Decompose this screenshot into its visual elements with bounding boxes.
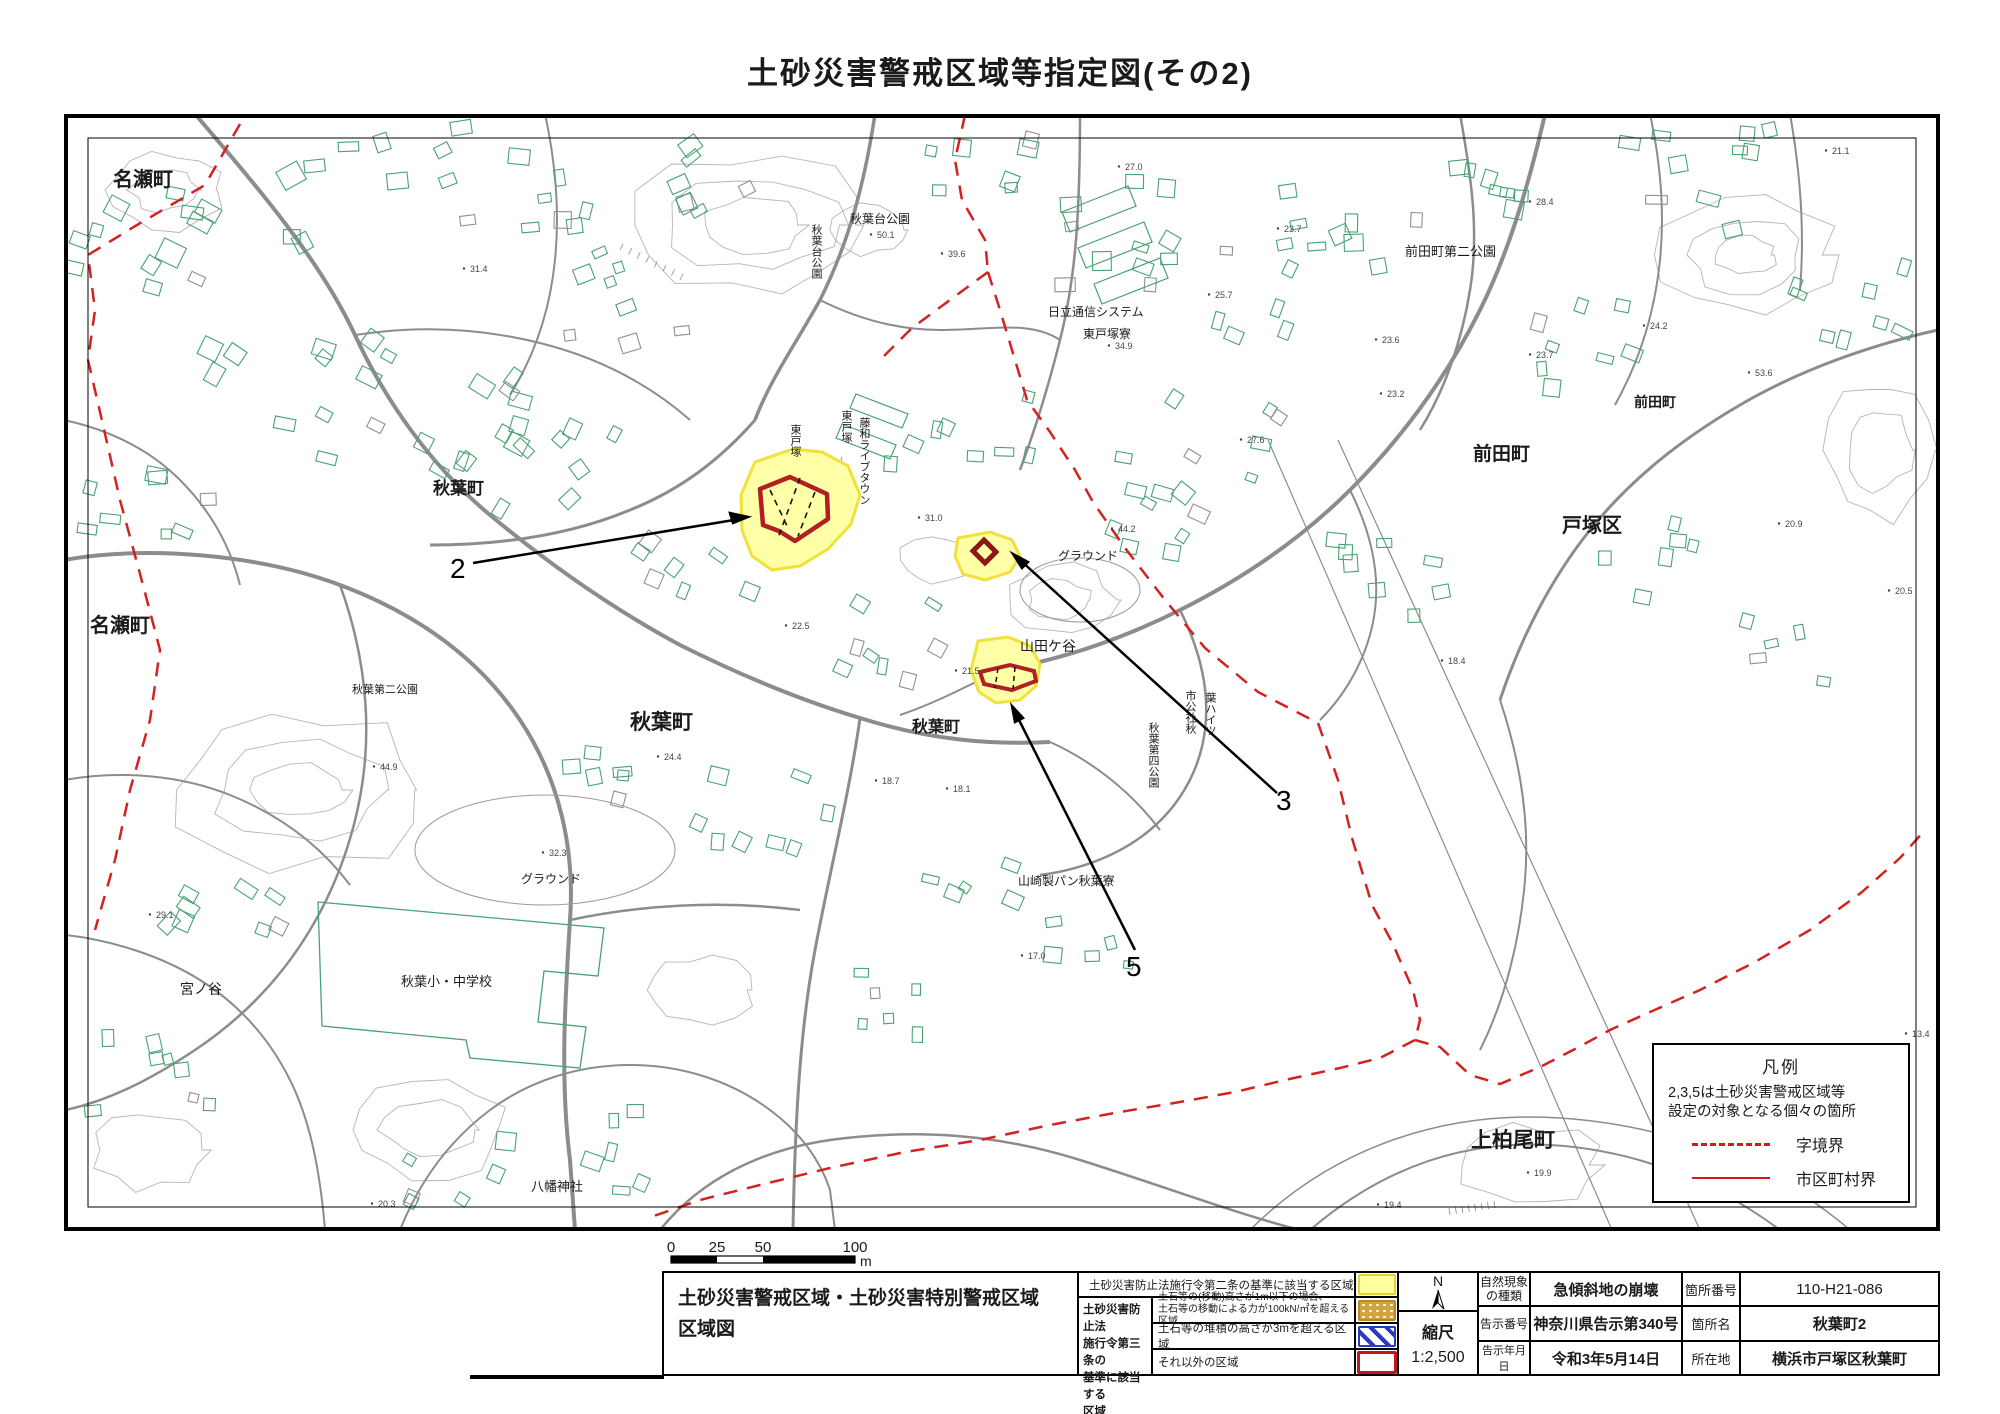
building [1001,857,1021,873]
building [403,1153,417,1166]
north-label: N [1427,1273,1449,1289]
spot-dot [946,787,948,789]
place-label-yamazaki-dorm: 山崎製パン秋葉寮 [1018,873,1115,888]
spot-dot [1529,353,1531,355]
building [1488,184,1507,197]
spot-dot [1277,227,1279,229]
building [1480,169,1498,189]
info-label-site-number: 箇所番号 [1682,1271,1740,1306]
building [89,223,104,238]
spot-dot [1111,527,1113,529]
building [386,172,408,190]
building [178,885,198,904]
spot-dot [870,233,872,235]
spot-dot [542,851,544,853]
building [592,246,608,259]
road [1790,114,1802,290]
contour-line [105,152,222,233]
road [64,420,240,585]
building [538,193,552,203]
road [1420,114,1474,430]
legend-group-line1: 土砂災害防止法 [1083,1302,1151,1336]
building [925,597,942,611]
building [707,766,729,786]
building [1873,316,1889,331]
building [912,984,921,996]
building [438,172,457,188]
building [69,231,90,249]
spot-elevation: 19.4 [1384,1200,1402,1210]
spot-elevation: 24.2 [1650,321,1668,331]
building [155,238,186,268]
spot-elevation: 21.5 [962,666,980,676]
info-label-site-name: 箇所名 [1682,1306,1740,1341]
legend-item-azakyokai: 字境界 [1796,1132,1844,1156]
place-label-maedacho-2: 前田町 [1473,442,1530,465]
place-label-higashitotsuka-2: 東戸塚 [840,410,853,443]
building [141,255,162,276]
spot-elevation: 25.7 [1215,290,1233,300]
place-label-nasecho-2: 名瀬町 [90,613,150,637]
building [487,1164,506,1184]
place-label-hitachi-line2: 東戸塚寮 [1083,326,1131,341]
building [1043,946,1062,963]
spot-elevation: 20.9 [1785,519,1803,529]
spot-dot [371,1202,373,1204]
contour-line [353,1080,505,1181]
building [188,1093,199,1103]
spot-dot [1888,589,1890,591]
building [1045,916,1062,928]
building [674,326,690,336]
place-label-yamadagaya: 山田ケ谷 [1020,638,1076,654]
building [1614,299,1630,313]
building [944,884,965,903]
spot-dot [785,624,787,626]
place-label-akiba-school: 秋葉小・中学校 [401,974,492,989]
building [100,513,121,524]
building [1696,190,1721,207]
building [1115,451,1133,464]
building [176,896,200,918]
spot-dot [1825,149,1827,151]
building [1308,242,1326,251]
building [1092,251,1111,270]
sheet-title-line2: 区域図 [678,1314,1039,1345]
spot-elevation: 31.0 [925,513,943,523]
spot-elevation: 21.1 [1832,146,1850,156]
building [1836,330,1851,350]
building [883,1013,893,1024]
place-label-maedacho-park: 前田町第二公園 [1405,244,1496,259]
contour-line [1010,562,1121,633]
building [611,791,627,808]
building [1537,361,1547,376]
building [1159,230,1181,252]
spot-dot [941,252,943,254]
contour-line [94,1115,212,1193]
spot-elevation: 31.4 [470,264,488,274]
spot-elevation: 20.5 [1895,586,1913,596]
aza-boundary-dashed [884,272,988,356]
building [709,547,728,564]
place-label-akibacho-2: 秋葉町 [630,711,693,734]
spot-dot [1208,293,1210,295]
scale-tick-25: 25 [709,1239,726,1256]
spot-elevation: 32.3 [549,848,567,858]
building [676,192,698,215]
building [863,648,879,663]
building [203,362,226,387]
building [573,264,595,285]
building [739,581,760,601]
building [161,529,171,539]
building [1220,246,1233,255]
building [562,418,582,440]
spot-dot [1380,392,1382,394]
legend-note-line1: 2,3,5は土砂災害警戒区域等 [1668,1084,1908,1103]
info-value-location: 横浜市戸塚区秋葉町 [1740,1341,1940,1376]
north-arrow-icon [1427,1289,1449,1311]
slope-hatch [671,269,674,275]
spot-elevation: 44.9 [380,762,398,772]
aza-boundary-dashed [988,272,1420,1040]
building [609,1113,619,1128]
spot-elevation: 28.4 [1536,197,1554,207]
legend-group-line4: 区域 [1083,1404,1151,1414]
road [1338,440,1700,1230]
building [508,148,531,166]
building [644,569,664,589]
spot-elevation: 18.1 [953,784,971,794]
road [66,585,366,1110]
spot-elevation: 22.5 [792,621,810,631]
building [60,259,84,276]
contour-line [1029,579,1091,620]
legend-row3-text: 土石等の堆積の高さが3mを超える区域 [1152,1323,1355,1349]
building [903,435,924,454]
building [1424,555,1443,567]
building [559,488,581,510]
place-label-akibadai-park: 秋葉台公園 [850,211,910,226]
zone-5-number: 5 [1126,951,1142,982]
building [1171,481,1195,505]
building [102,1029,114,1046]
spot-dot [1905,1032,1907,1034]
place-label-towa-livetown: 藤和ライブタウン [858,417,871,505]
building [434,142,452,159]
zone-3-area [955,532,1020,580]
place-label-city-housing-col2: 葉ハイツ [1204,691,1217,736]
swatch-blue-hatched [1358,1326,1396,1347]
building [766,835,786,851]
building [566,218,583,235]
spot-elevation: 39.6 [948,249,966,259]
spot-elevation: 19.9 [1534,1168,1552,1178]
building [613,261,625,274]
building [604,276,617,289]
building [562,759,581,774]
spot-elevation: 24.4 [664,752,682,762]
legend-title: 凡例 [1654,1053,1908,1078]
building [1188,504,1211,524]
building [899,671,916,689]
building [1732,146,1747,155]
place-label-nasecho-1: 名瀬町 [113,167,173,191]
slope-hatch [1487,1202,1488,1209]
building [612,1186,630,1195]
spot-elevation: 18.4 [1448,656,1466,666]
legend-row4-text: それ以外の区域 [1152,1349,1355,1376]
slope-hatch [629,248,632,254]
building [1633,589,1652,605]
road [64,775,350,885]
spot-dot [463,267,465,269]
spot-dot [657,755,659,757]
building [1658,548,1673,567]
place-label-akibacho-3: 秋葉町 [912,717,960,736]
contour-line [377,1100,479,1157]
building [1344,234,1364,252]
spot-elevation: 27.0 [1125,162,1143,172]
contour-line [647,955,752,1025]
slope-hatch [680,274,683,280]
place-label-totsukaku: 戸塚区 [1562,514,1622,537]
building [1687,539,1699,553]
spot-dot [955,669,957,671]
building [786,840,802,857]
building [338,142,359,152]
building [1369,258,1387,275]
building [921,874,939,886]
slope-hatch [637,252,640,258]
building [618,333,641,354]
large-building [1078,222,1152,268]
building [1596,353,1614,365]
road [510,114,557,395]
building [1184,449,1201,464]
building [188,271,206,286]
building [579,202,593,220]
building [149,1052,164,1066]
building [276,161,307,190]
info-value-notice-number: 神奈川県告示第340号 [1530,1306,1682,1341]
building [617,770,629,781]
building [584,746,601,760]
building [1161,253,1178,265]
building [513,438,534,459]
building [1817,676,1831,687]
slope-hatch [1468,1205,1469,1212]
building [995,447,1014,456]
building [1151,484,1174,502]
info-label-notice-number: 告示番号 [1478,1306,1530,1341]
place-label-city-housing-col1: 市公社秋 [1184,689,1197,735]
place-label-ground-2: グラウンド [521,872,581,886]
building [1326,532,1346,548]
road [66,935,325,1230]
building [1002,890,1025,911]
scale-tick-50: 50 [755,1239,772,1256]
legend-item-shikuchoson: 市区町村界 [1796,1166,1876,1190]
building [143,279,163,296]
building [1574,297,1589,314]
building [468,374,495,399]
place-label-akibacho-1: 秋葉町 [433,478,484,498]
building [932,185,946,196]
building [1621,344,1643,363]
swatch-orange-dotted [1358,1300,1396,1321]
building [791,769,811,784]
building [967,451,984,462]
building [580,1151,604,1172]
info-value-notice-date: 令和3年5月14日 [1530,1341,1682,1376]
contour-line [215,739,389,841]
spot-elevation: 29.1 [156,910,174,920]
building [197,336,223,362]
building [1820,329,1835,343]
spot-dot [149,913,151,915]
building [1646,195,1668,204]
building [84,1105,101,1118]
road [1615,114,1662,405]
building [460,215,476,226]
place-label-akiba-park2: 秋葉第二公園 [352,682,418,696]
contour-line [705,198,809,255]
spot-dot [373,765,375,767]
building [850,594,871,614]
building [200,493,216,506]
building [454,1192,470,1207]
building [937,418,955,437]
place-label-akiba-park4-v: 秋葉第四公園 [1147,721,1160,789]
zone-2-number: 2 [450,553,466,584]
building [521,222,539,233]
boundary-dashed-sample [1692,1143,1770,1146]
building [564,329,576,341]
building [146,1034,163,1053]
spot-dot [1377,1203,1379,1205]
building [1023,447,1036,464]
legend-group-line2: 施行令第三条の [1083,1336,1151,1370]
building [1764,638,1779,649]
building [1343,554,1358,572]
info-label-phenomenon-1: 自然現象 [1480,1275,1528,1289]
building [616,299,637,317]
building [380,349,396,364]
scale-bar: 0 25 50 100 m [667,1239,872,1269]
building [927,638,947,658]
building [689,814,707,833]
building [1271,409,1288,426]
sheet-title-line1: 土砂災害警戒区域・土砂災害特別警戒区域 [678,1283,1039,1314]
building [223,343,247,366]
slope-hatch [620,244,623,250]
building [1788,277,1803,297]
building [1739,126,1755,142]
place-label-ground-1: グラウンド [1058,549,1118,563]
building [1599,551,1611,565]
building [77,523,97,535]
aza-boundary-dashed [648,1040,1415,1218]
boundary-solid-sample [1692,1177,1770,1179]
road [1480,700,1526,1050]
contour-line [1715,235,1776,273]
building [304,159,326,173]
building [870,988,880,999]
building [1668,516,1682,532]
building [912,1027,922,1043]
building [1085,951,1100,962]
spot-dot [1441,659,1443,661]
spot-elevation: 53.6 [1755,368,1773,378]
place-label-higashitotsuka-1: 東戸塚 [789,424,802,457]
spot-elevation: 23.7 [1536,350,1554,360]
spot-elevation: 23.6 [1382,335,1400,345]
building [1543,378,1561,397]
building [1165,389,1184,409]
info-value-site-number: 110-H21-086 [1740,1271,1940,1306]
building [1157,179,1175,198]
building [1668,155,1688,174]
scale-label: 縮尺 [1411,1319,1464,1343]
road [793,718,860,1230]
spot-elevation: 23.2 [1387,389,1405,399]
contour-line [1823,390,1937,525]
building [552,430,570,448]
building [1749,653,1766,664]
building [821,804,835,822]
spot-dot [1240,438,1242,440]
building [958,881,971,894]
building [234,878,258,899]
building [664,557,684,578]
building [585,767,602,785]
building [633,1174,651,1193]
contour-line [635,156,864,294]
building [273,416,296,432]
building [265,888,285,906]
place-label-miyanoya: 宮ノ谷 [180,981,222,997]
contour-line [1687,222,1799,295]
swatch-red-outline [1357,1351,1397,1374]
map-legend-box: 凡例 2,3,5は土砂災害警戒区域等 設定の対象となる個々の箇所 字境界 市区町… [1652,1043,1910,1203]
building [174,1062,190,1078]
building [667,174,691,195]
building [1432,584,1451,600]
scale-tick-0: 0 [667,1239,675,1256]
info-value-phenomenon: 急傾斜地の崩壊 [1530,1271,1682,1306]
contour-line [1654,195,1839,316]
building [83,480,97,496]
building [569,459,590,480]
building [203,1098,215,1111]
building [1263,402,1277,417]
hazard-map-page: 土砂災害警戒区域等指定図(その2) [0,0,2000,1414]
scale-value: 1:2,500 [1411,1349,1464,1367]
spot-dot [1643,324,1645,326]
road [660,1134,1300,1230]
building [172,909,195,932]
building [373,132,391,153]
building [1278,320,1294,340]
building [711,833,724,850]
slope-hatch [663,265,666,271]
building [1739,613,1754,630]
building [1245,472,1258,483]
spot-elevation: 50.1 [877,230,895,240]
building [953,139,972,158]
